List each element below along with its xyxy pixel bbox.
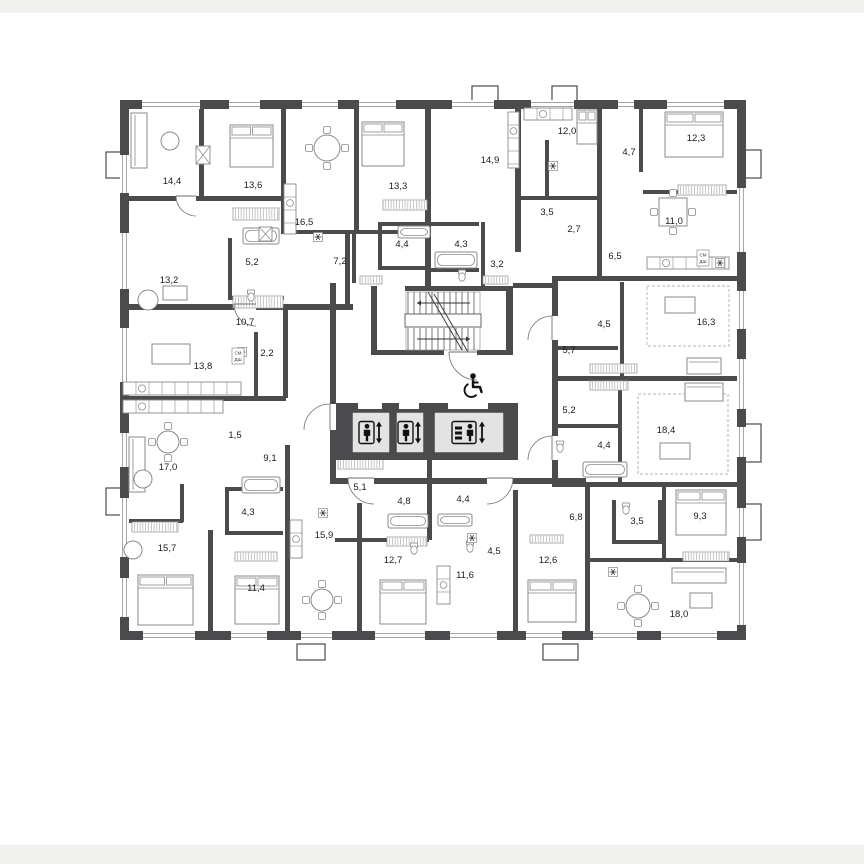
kitchen-counter <box>123 382 241 395</box>
chair <box>306 145 313 152</box>
window <box>447 631 500 640</box>
bed <box>138 575 193 625</box>
chair <box>181 439 188 446</box>
window-cap <box>637 631 640 640</box>
wall <box>558 424 618 428</box>
room-area-label: 4,3 <box>454 239 467 250</box>
room-area-label: 3,5 <box>630 516 643 527</box>
closet-hatch <box>590 381 628 390</box>
round-table <box>626 594 650 618</box>
armchair <box>124 541 142 559</box>
window-cap <box>449 100 452 109</box>
window <box>737 505 746 540</box>
wall <box>371 286 377 354</box>
window-cap <box>724 100 727 109</box>
room-area-label: 12,3 <box>687 133 706 144</box>
round-table <box>311 589 333 611</box>
wall <box>225 487 229 535</box>
balcony-tab <box>745 150 761 178</box>
window-cap <box>562 631 565 640</box>
window-cap <box>737 424 746 427</box>
room-area-label: 13,3 <box>389 181 408 192</box>
person-icon <box>365 424 370 429</box>
room-area-label: 6,8 <box>569 512 582 523</box>
room-area-label: 16,5 <box>295 217 314 228</box>
room-area-label: 5,2 <box>245 257 258 268</box>
appliance-label: ДШ <box>699 259 706 264</box>
window <box>737 560 746 628</box>
bottom-margin <box>0 845 864 864</box>
wall <box>228 238 232 298</box>
balcony-tab <box>552 86 577 101</box>
wall <box>208 530 213 631</box>
room-area-label: 11,6 <box>456 570 474 581</box>
window <box>299 100 341 109</box>
wall <box>612 500 616 544</box>
bed <box>230 125 273 167</box>
window-cap <box>737 457 746 460</box>
sofa <box>672 568 726 583</box>
window-cap <box>120 495 129 498</box>
window-cap <box>615 100 618 109</box>
balcony-tab <box>106 488 121 515</box>
chair <box>635 586 642 593</box>
room-area-label: 14,4 <box>163 176 182 187</box>
elevator-car <box>396 412 424 453</box>
door-gap <box>176 196 196 201</box>
window-cap <box>140 631 143 640</box>
window-cap <box>737 560 746 563</box>
window <box>120 430 129 470</box>
wall <box>612 540 662 544</box>
room-area-label: 9,3 <box>693 511 706 522</box>
balcony-tab <box>297 644 325 660</box>
toilet-bowl <box>557 444 563 452</box>
window-cap <box>356 100 359 109</box>
wall <box>513 490 518 631</box>
appliance-label: СМ <box>700 253 707 258</box>
room-area-label: 16,3 <box>697 317 716 328</box>
appliance-label: ДШ <box>234 357 241 362</box>
bed <box>528 580 576 622</box>
wall <box>345 232 350 308</box>
room-area-label: 4,4 <box>456 494 469 505</box>
toilet-bowl <box>248 293 254 301</box>
closet-hatch <box>590 364 637 373</box>
kitchen-counter <box>123 400 223 413</box>
window <box>120 575 129 620</box>
window <box>737 424 746 460</box>
window-cap <box>120 325 129 328</box>
room-area-label: 13,8 <box>194 361 213 372</box>
window-cap <box>447 631 450 640</box>
window-cap <box>120 430 129 433</box>
window-cap <box>497 631 500 640</box>
room-area-label: 17,0 <box>159 462 178 473</box>
rect-table <box>665 297 695 313</box>
sofa <box>685 383 723 401</box>
room-area-label: 6,5 <box>608 251 621 262</box>
room-area-label: 4,5 <box>597 319 610 330</box>
window <box>449 100 497 109</box>
window <box>372 631 428 640</box>
window-cap <box>120 193 129 196</box>
kitchen-counter <box>290 520 302 558</box>
window-cap <box>717 631 720 640</box>
wall <box>477 350 513 355</box>
kitchen-counter <box>524 108 572 120</box>
window-cap <box>139 100 142 109</box>
wall <box>662 484 666 560</box>
window-cap <box>120 575 129 578</box>
room-area-label: 1,5 <box>228 430 241 441</box>
window <box>523 631 565 640</box>
wall <box>371 350 444 355</box>
chair <box>689 209 696 216</box>
wall <box>658 500 662 544</box>
room-area-label: 4,7 <box>622 147 635 158</box>
chair <box>303 597 310 604</box>
window-cap <box>299 100 302 109</box>
window-cap <box>425 631 428 640</box>
chair <box>635 620 642 627</box>
room-area-label: 4,5 <box>487 546 500 557</box>
balcony-tab <box>472 86 498 101</box>
window <box>737 185 746 255</box>
wall <box>378 222 425 226</box>
wall <box>556 276 738 281</box>
floor-plan-svg: СМДШСМДШ14,413,616,513,314,912,04,712,31… <box>0 0 864 864</box>
wall <box>431 268 479 272</box>
chair <box>670 228 677 235</box>
wall <box>506 286 513 354</box>
balcony-tab <box>106 152 121 178</box>
room-area-label: 12,0 <box>558 126 577 137</box>
room-area-label: 14,9 <box>481 155 500 166</box>
wall <box>597 106 602 278</box>
window-cap <box>228 631 231 640</box>
toilet-bowl <box>467 544 473 552</box>
window-cap <box>200 100 203 109</box>
person-icon <box>468 424 473 429</box>
window <box>737 288 746 332</box>
toilet-bowl <box>623 506 629 514</box>
room-area-label: 3,2 <box>490 259 503 270</box>
window-cap <box>120 230 129 233</box>
elevator-door-gap <box>448 403 488 409</box>
window-cap <box>664 100 667 109</box>
chair <box>319 581 326 588</box>
room-area-label: 2,2 <box>260 348 273 359</box>
rect-table <box>690 593 712 608</box>
room-area-label: 13,6 <box>244 180 263 191</box>
bathtub <box>438 514 472 526</box>
floor-plan-page: СМДШСМДШ14,413,616,513,314,912,04,712,31… <box>0 0 864 864</box>
wall <box>378 266 425 270</box>
window <box>120 152 129 196</box>
stretcher-bars-icon <box>455 432 462 435</box>
wall <box>354 106 359 232</box>
window-cap <box>523 631 526 640</box>
room-area-label: 11,0 <box>665 216 683 227</box>
wall <box>405 286 513 291</box>
wall <box>285 445 290 631</box>
armchair <box>161 132 179 150</box>
closet-hatch <box>387 537 427 546</box>
room-area-label: 2,7 <box>567 224 580 235</box>
sofa <box>687 358 721 374</box>
armchair <box>134 470 152 488</box>
chair <box>618 603 625 610</box>
window <box>615 100 637 109</box>
balcony-tab <box>745 504 761 540</box>
window-cap <box>737 409 746 412</box>
chair <box>324 163 331 170</box>
balcony-tab <box>745 424 761 462</box>
chair <box>324 127 331 134</box>
bed <box>380 580 426 624</box>
rect-table <box>660 443 690 459</box>
armchair <box>138 290 158 310</box>
room-area-label: 18,0 <box>670 609 689 620</box>
door-gap <box>552 316 558 340</box>
elevator-car <box>352 412 390 453</box>
window-cap <box>120 289 129 292</box>
wall <box>431 222 479 226</box>
wall <box>585 484 590 631</box>
room-area-label: 4,4 <box>395 239 408 250</box>
chair <box>319 613 326 620</box>
window <box>120 230 129 292</box>
window <box>658 631 720 640</box>
room-area-label: 4,3 <box>241 507 254 518</box>
wall <box>427 460 432 540</box>
window-cap <box>372 631 375 640</box>
door-gap <box>487 478 513 484</box>
appliance-label: СМ <box>235 351 242 356</box>
window-cap <box>396 100 399 109</box>
chair <box>342 145 349 152</box>
window <box>228 631 270 640</box>
stretcher-bars-icon <box>455 427 462 430</box>
window-cap <box>737 625 746 628</box>
window <box>356 100 399 109</box>
wall <box>639 106 643 172</box>
wall <box>556 376 738 381</box>
rect-table <box>163 286 187 300</box>
wall <box>378 222 382 268</box>
closet-hatch <box>483 276 508 284</box>
room-area-label: 5,7 <box>562 345 575 356</box>
person-icon <box>404 424 409 429</box>
window-cap <box>267 631 270 640</box>
window-cap <box>195 631 198 640</box>
window-cap <box>737 252 746 255</box>
wall <box>180 484 184 522</box>
chair <box>149 439 156 446</box>
kitchen-counter <box>508 112 519 168</box>
bed <box>577 110 597 144</box>
toilet-bowl <box>411 546 417 554</box>
window-cap <box>737 356 746 359</box>
room-area-label: 13,2 <box>160 275 179 286</box>
window-cap <box>658 631 661 640</box>
stair-landing <box>405 314 481 327</box>
window <box>226 100 263 109</box>
wall <box>352 232 356 283</box>
wall <box>330 283 336 404</box>
wall <box>254 332 258 398</box>
window <box>664 100 727 109</box>
window-cap <box>120 467 129 470</box>
chair <box>651 209 658 216</box>
outer-wall <box>121 631 746 640</box>
wall <box>357 503 362 631</box>
sofa <box>131 113 147 168</box>
top-margin <box>0 0 864 13</box>
balcony-tab <box>543 644 578 660</box>
window-cap <box>634 100 637 109</box>
room-area-label: 15,7 <box>158 543 177 554</box>
window-cap <box>120 617 129 620</box>
room-area-label: 12,6 <box>539 555 558 566</box>
chair <box>335 597 342 604</box>
chair <box>670 190 677 197</box>
chair <box>165 423 172 430</box>
window-cap <box>590 631 593 640</box>
toilet-bowl <box>459 273 465 281</box>
room-area-label: 3,5 <box>540 207 553 218</box>
wall <box>552 482 746 487</box>
window-cap <box>737 329 746 332</box>
room-area-label: 18,4 <box>657 425 676 436</box>
chair <box>652 603 659 610</box>
window <box>590 631 640 640</box>
closet-hatch <box>235 552 277 561</box>
window <box>120 325 129 385</box>
outer-wall <box>121 100 746 109</box>
window-cap <box>737 288 746 291</box>
room-area-label: 5,1 <box>353 482 366 493</box>
elevator-door-gap <box>358 403 382 409</box>
window-cap <box>332 631 335 640</box>
window-cap <box>260 100 263 109</box>
round-table <box>314 135 340 161</box>
bathtub <box>398 226 430 238</box>
wall <box>330 430 336 484</box>
window-cap <box>338 100 341 109</box>
rect-table <box>152 344 190 364</box>
room-area-label: 12,7 <box>384 555 403 566</box>
wall <box>225 531 283 535</box>
wall <box>515 196 601 200</box>
room-area-label: 5,2 <box>562 405 575 416</box>
round-table <box>157 431 179 453</box>
chair <box>165 455 172 462</box>
window <box>298 631 335 640</box>
wall <box>283 306 288 398</box>
window-cap <box>737 185 746 188</box>
room-area-label: 11,4 <box>247 583 265 594</box>
room-area-label: 7,2 <box>333 256 346 267</box>
window-cap <box>574 100 577 109</box>
room-area-label: 10,7 <box>236 317 255 328</box>
closet-hatch <box>678 185 726 195</box>
room-area-label: 15,9 <box>315 530 334 541</box>
stretcher-bars-icon <box>455 437 462 440</box>
window <box>139 100 203 109</box>
wall <box>513 283 552 288</box>
window-cap <box>226 100 229 109</box>
bed <box>362 122 404 166</box>
window-cap <box>737 505 746 508</box>
elevator-door-gap <box>399 403 419 409</box>
room-area-label: 9,1 <box>263 453 276 464</box>
window <box>140 631 198 640</box>
wall <box>121 196 286 201</box>
kitchen-counter <box>437 566 450 604</box>
window <box>737 356 746 412</box>
room-area-label: 4,4 <box>597 440 610 451</box>
window-cap <box>120 152 129 155</box>
window-cap <box>737 537 746 540</box>
room-area-label: 4,8 <box>397 496 410 507</box>
wall <box>425 106 431 288</box>
window-cap <box>494 100 497 109</box>
window-cap <box>298 631 301 640</box>
